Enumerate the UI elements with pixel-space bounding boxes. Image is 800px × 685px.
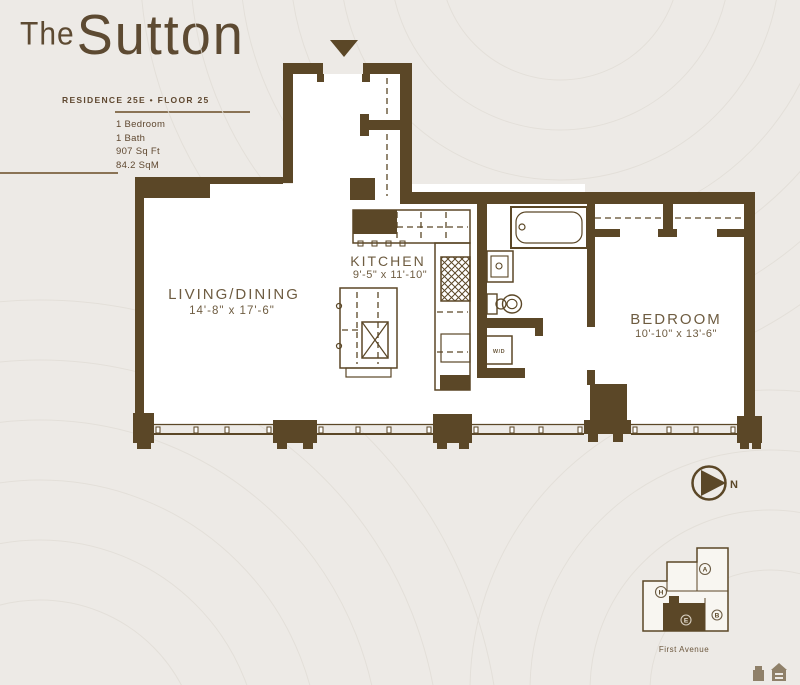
floor-plan-canvas: LIVING/DINING 14'-8" x 17'-6" KITCHEN 9'… (0, 0, 800, 685)
keyplan-unit-h-label: H (659, 590, 664, 597)
keyplan: A H B E First Avenue (643, 548, 728, 654)
footer-logos (753, 663, 787, 681)
realtor-logo-icon (753, 666, 764, 681)
living-dining-dimensions: 14'-8" x 17'-6" (189, 305, 275, 317)
floorplan-page: { "header": { "logo_the": "The", "logo_n… (0, 0, 800, 685)
kitchen-label: KITCHEN (350, 253, 425, 269)
keyplan-unit-a-label: A (703, 567, 708, 574)
street-label: First Avenue (659, 645, 709, 654)
apartment-footprint (144, 74, 745, 425)
compass-icon: N (693, 467, 739, 500)
keyplan-unit-e-label: E (684, 618, 689, 625)
compass-north-label: N (730, 479, 738, 491)
equal-housing-icon (771, 663, 787, 681)
bedroom-label: BEDROOM (630, 311, 722, 328)
living-dining-label: LIVING/DINING (168, 286, 300, 303)
range (441, 257, 470, 301)
entry-arrow-icon (330, 40, 358, 57)
kitchen-dimensions: 9'-5" x 11'-10" (353, 269, 427, 281)
washer-dryer-label: W/D (493, 349, 505, 355)
keyplan-unit-e-stem (669, 596, 679, 604)
fridge (353, 210, 397, 234)
keyplan-unit-b-label: B (715, 613, 720, 620)
bedroom-dimensions: 10'-10" x 13'-6" (635, 328, 717, 340)
